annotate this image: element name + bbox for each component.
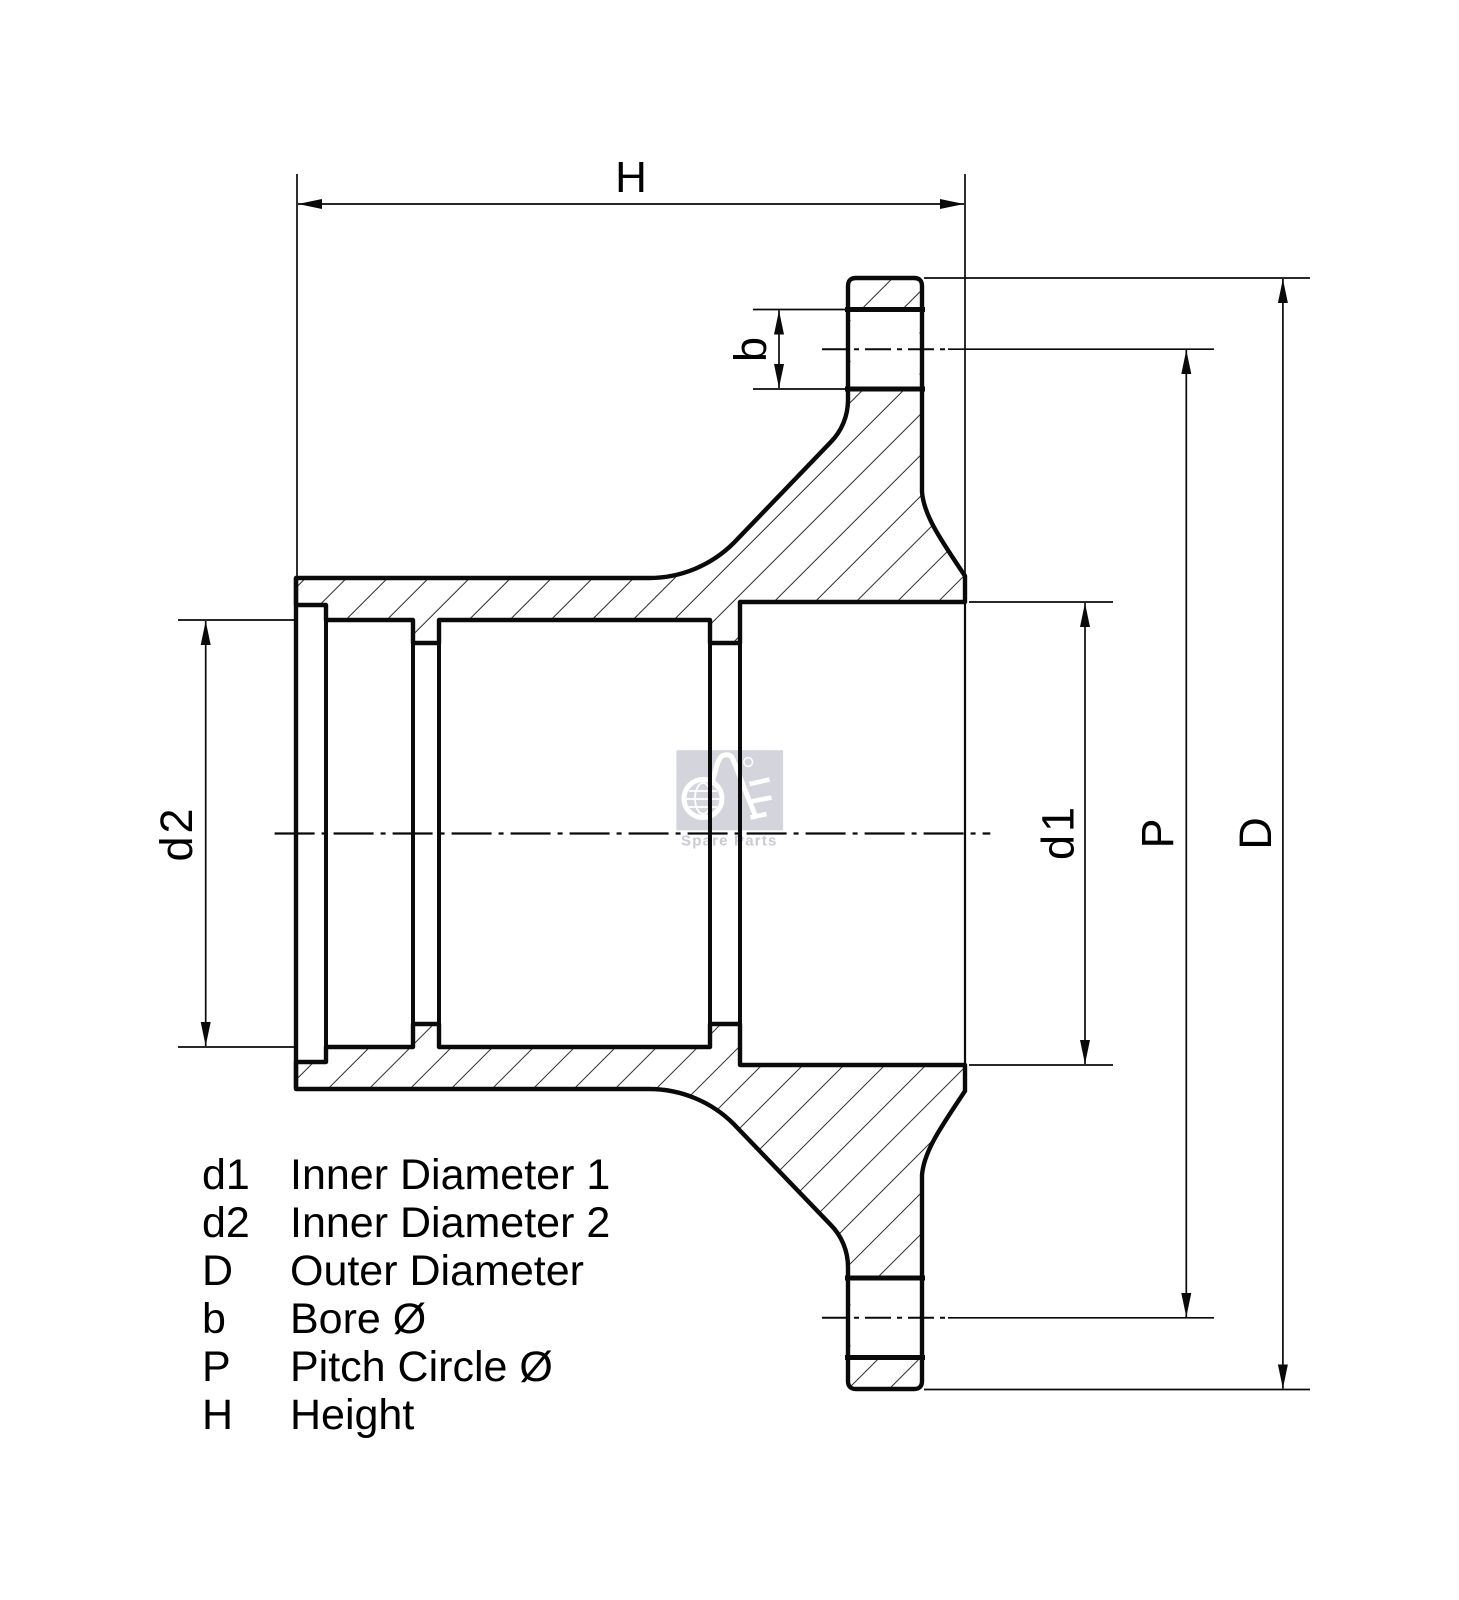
svg-text:Outer Diameter: Outer Diameter xyxy=(290,1247,584,1295)
svg-text:D: D xyxy=(202,1247,233,1295)
svg-text:H: H xyxy=(615,153,647,202)
svg-text:d2: d2 xyxy=(151,805,202,861)
svg-text:b: b xyxy=(725,337,776,362)
svg-text:P: P xyxy=(202,1343,231,1391)
svg-text:d2: d2 xyxy=(202,1199,250,1247)
svg-text:Inner Diameter 2: Inner Diameter 2 xyxy=(290,1199,610,1247)
svg-text:Pitch Circle Ø: Pitch Circle Ø xyxy=(290,1343,553,1391)
svg-text:b: b xyxy=(202,1295,226,1343)
svg-text:Bore Ø: Bore Ø xyxy=(290,1295,426,1343)
svg-text:d1: d1 xyxy=(202,1151,250,1199)
svg-text:d1: d1 xyxy=(1033,804,1084,860)
svg-text:Inner Diameter 1: Inner Diameter 1 xyxy=(290,1151,610,1199)
svg-text:D: D xyxy=(1230,817,1281,850)
svg-text:Spare Parts: Spare Parts xyxy=(681,833,778,850)
svg-text:H: H xyxy=(202,1391,233,1439)
svg-text:P: P xyxy=(1132,818,1183,848)
svg-text:Height: Height xyxy=(290,1391,414,1439)
